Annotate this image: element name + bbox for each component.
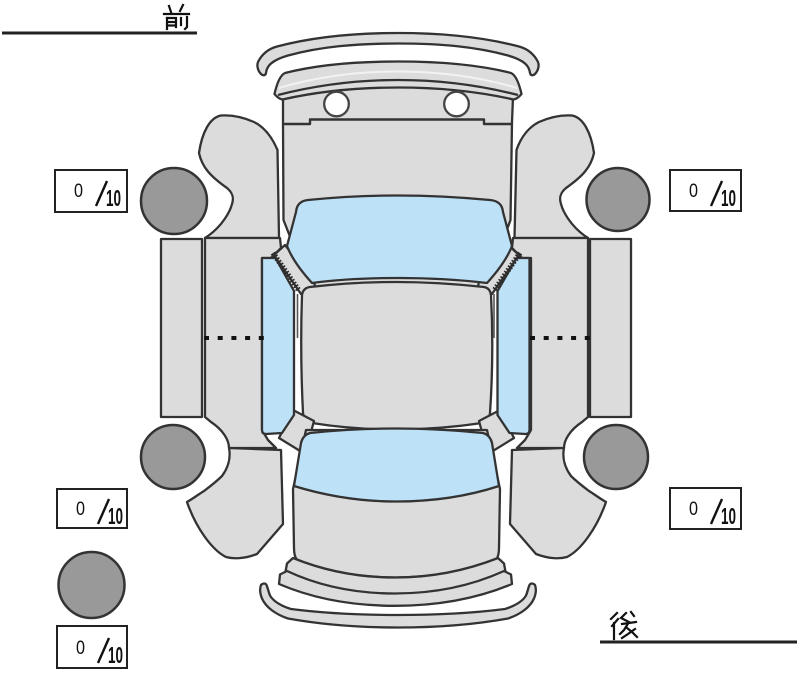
svg-text:0: 0 bbox=[689, 499, 698, 520]
svg-text:0: 0 bbox=[76, 499, 85, 520]
svg-text:10: 10 bbox=[721, 503, 736, 529]
svg-text:10: 10 bbox=[108, 503, 123, 529]
svg-text:0: 0 bbox=[74, 181, 83, 202]
svg-text:10: 10 bbox=[108, 642, 123, 668]
svg-text:0: 0 bbox=[689, 181, 698, 202]
svg-text:10: 10 bbox=[106, 185, 121, 211]
svg-text:0: 0 bbox=[76, 638, 85, 659]
svg-text:10: 10 bbox=[721, 185, 736, 211]
